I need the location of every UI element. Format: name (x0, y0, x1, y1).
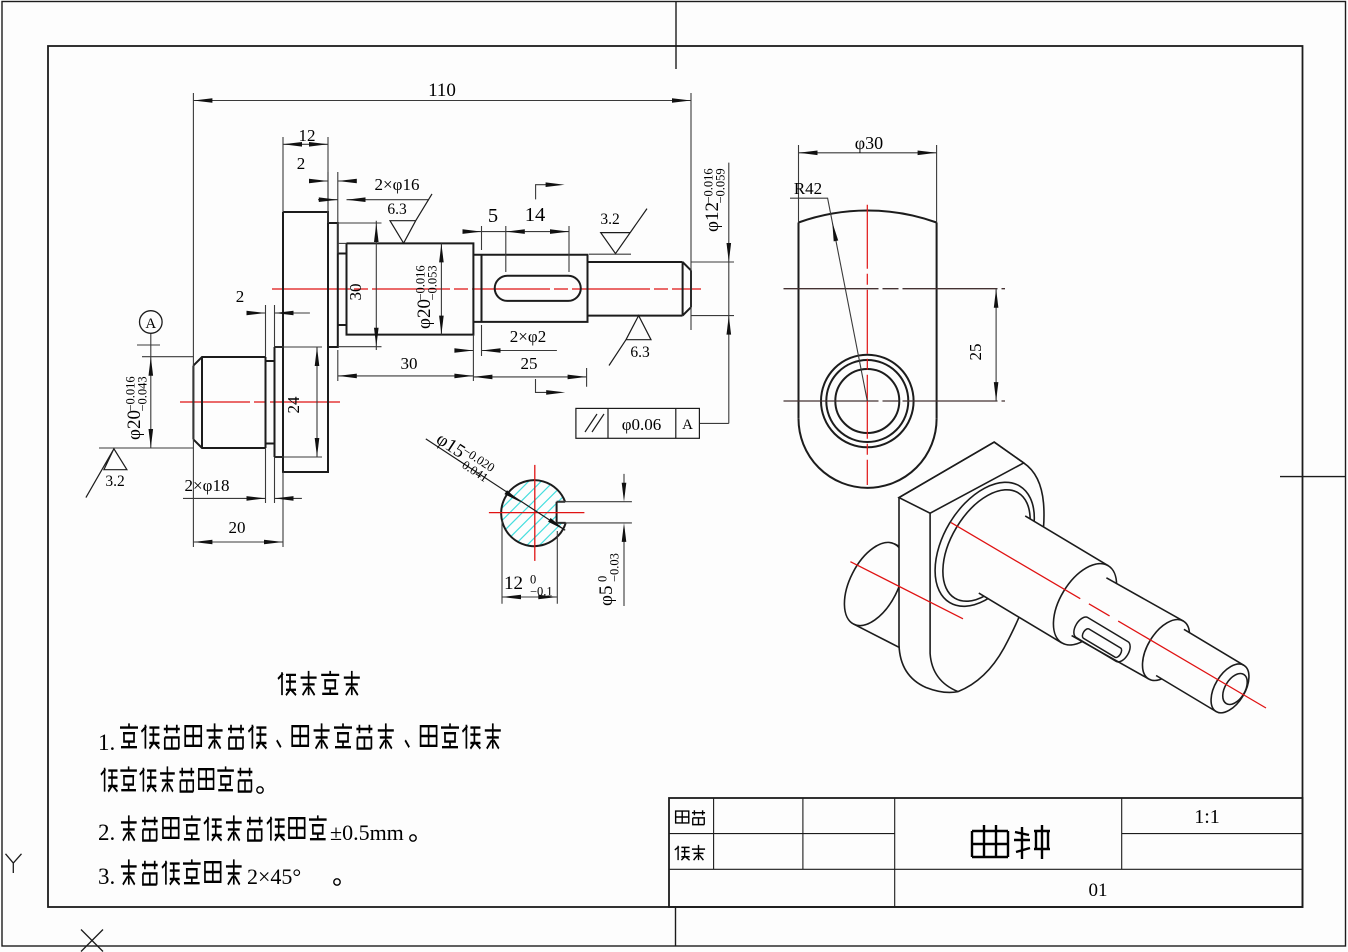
svg-text:5: 5 (488, 205, 498, 227)
svg-text:6.3: 6.3 (387, 201, 407, 218)
svg-text:φ12: φ12 (702, 202, 723, 232)
svg-text:01: 01 (1089, 880, 1108, 901)
svg-text:25: 25 (521, 354, 538, 373)
svg-text:−0.043: −0.043 (136, 376, 150, 411)
svg-text:φ20: φ20 (124, 410, 145, 440)
svg-text:φ20: φ20 (414, 299, 435, 329)
svg-text:A: A (682, 417, 693, 433)
svg-text:12: 12 (299, 126, 316, 145)
svg-text:30: 30 (401, 354, 418, 373)
svg-text:A: A (145, 316, 156, 332)
svg-text:φ30: φ30 (855, 133, 883, 153)
svg-text:1:1: 1:1 (1194, 806, 1220, 828)
svg-text:2×φ18: 2×φ18 (185, 476, 230, 495)
svg-text:25: 25 (966, 344, 985, 361)
svg-text:R42: R42 (794, 179, 822, 198)
svg-text:30: 30 (346, 284, 365, 301)
svg-text:2×φ16: 2×φ16 (375, 175, 420, 194)
svg-text:−0.03: −0.03 (608, 553, 622, 582)
svg-text:φ0.06: φ0.06 (622, 415, 662, 434)
svg-text:6.3: 6.3 (630, 344, 650, 361)
svg-text:3.2: 3.2 (105, 473, 124, 490)
svg-text:−0.053: −0.053 (426, 265, 440, 300)
svg-text:2: 2 (297, 154, 306, 173)
svg-text:−0.1: −0.1 (530, 585, 553, 599)
svg-text:3.: 3. (98, 864, 115, 889)
svg-text:−0.059: −0.059 (714, 168, 728, 203)
svg-text:2×45°: 2×45° (247, 864, 301, 889)
svg-text:2: 2 (236, 287, 245, 306)
svg-text:1.: 1. (98, 730, 115, 755)
svg-text:2.: 2. (98, 820, 115, 845)
svg-text:2×φ2: 2×φ2 (510, 327, 546, 346)
svg-text:14: 14 (525, 204, 546, 226)
svg-text:±0.5mm: ±0.5mm (330, 820, 404, 845)
svg-text:12: 12 (504, 573, 523, 594)
svg-text:20: 20 (229, 518, 246, 537)
svg-text:24: 24 (284, 396, 303, 414)
svg-text:3.2: 3.2 (600, 211, 619, 228)
svg-text:110: 110 (428, 80, 456, 101)
svg-text:φ5: φ5 (596, 586, 617, 606)
